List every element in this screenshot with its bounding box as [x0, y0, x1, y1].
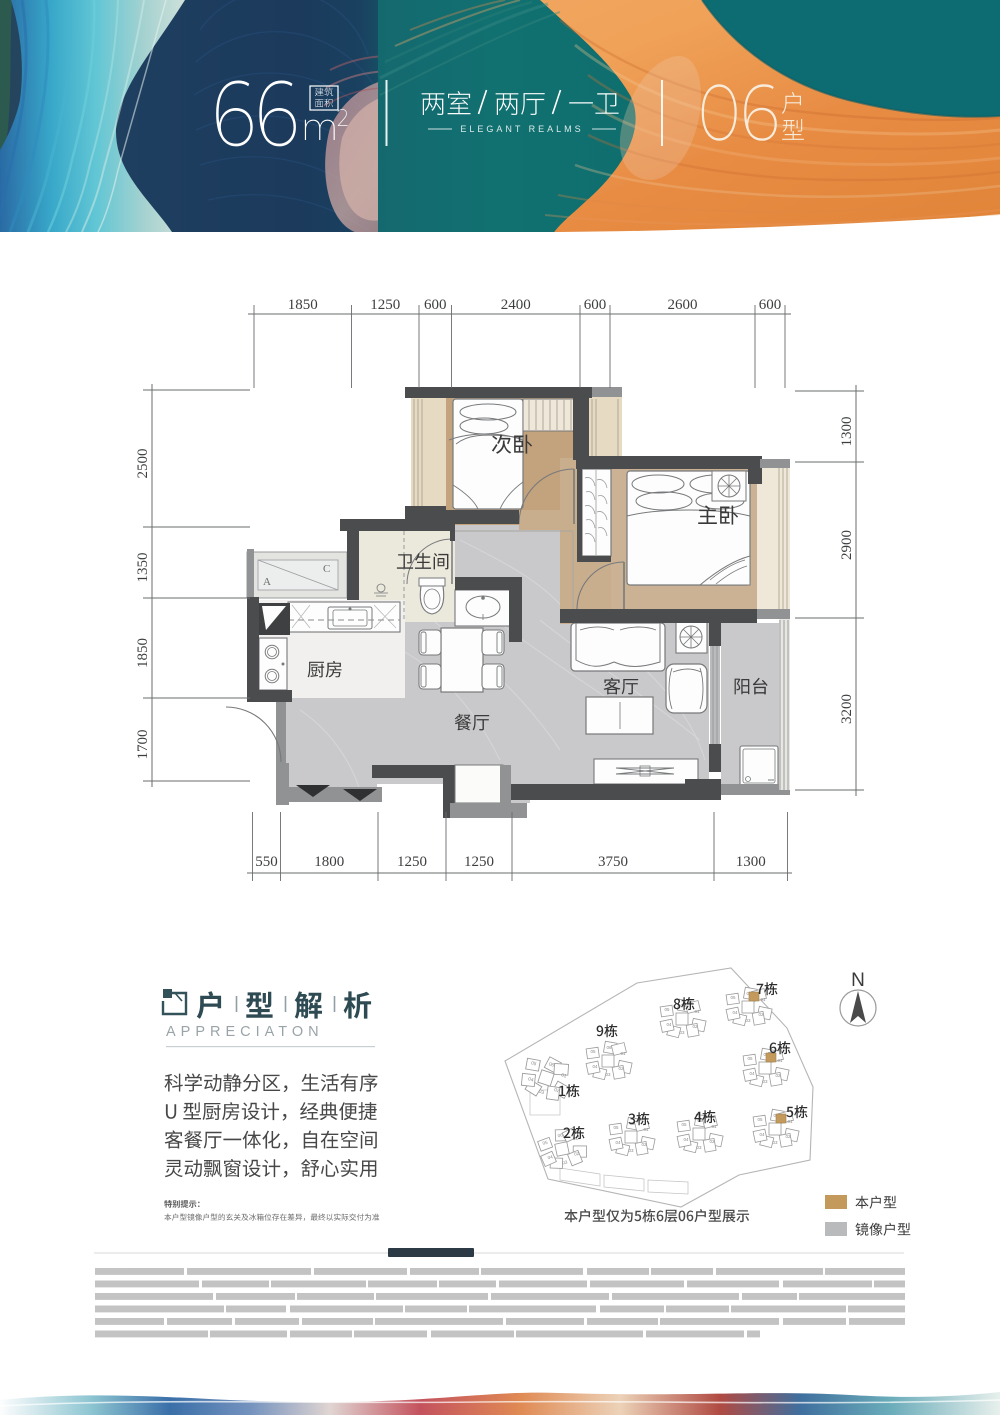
svg-text:1850: 1850 [288, 297, 318, 313]
svg-text:1250: 1250 [370, 297, 400, 313]
svg-text:ELEGANT REALMS: ELEGANT REALMS [460, 124, 583, 134]
svg-text:600: 600 [584, 297, 607, 313]
svg-text:2900: 2900 [839, 530, 855, 560]
svg-text:2600: 2600 [668, 297, 698, 313]
svg-text:1300: 1300 [839, 417, 855, 447]
svg-text:1300: 1300 [736, 854, 766, 870]
svg-text:3750: 3750 [598, 854, 628, 870]
svg-text:2500: 2500 [135, 449, 151, 479]
svg-text:A: A [263, 576, 271, 588]
svg-text:1250: 1250 [397, 854, 427, 870]
svg-text:1350: 1350 [135, 553, 151, 583]
svg-text:1700: 1700 [135, 730, 151, 760]
svg-text:600: 600 [759, 297, 782, 313]
svg-text:1800: 1800 [314, 854, 344, 870]
svg-text:N: N [851, 970, 865, 991]
svg-text:1250: 1250 [464, 854, 494, 870]
svg-text:1850: 1850 [135, 638, 151, 668]
svg-text:550: 550 [255, 854, 278, 870]
svg-text:2400: 2400 [501, 297, 531, 313]
svg-text:3200: 3200 [839, 694, 855, 724]
svg-text:APPRECIATON: APPRECIATON [166, 1024, 324, 1040]
svg-text:C: C [323, 563, 330, 575]
svg-text:600: 600 [424, 297, 447, 313]
